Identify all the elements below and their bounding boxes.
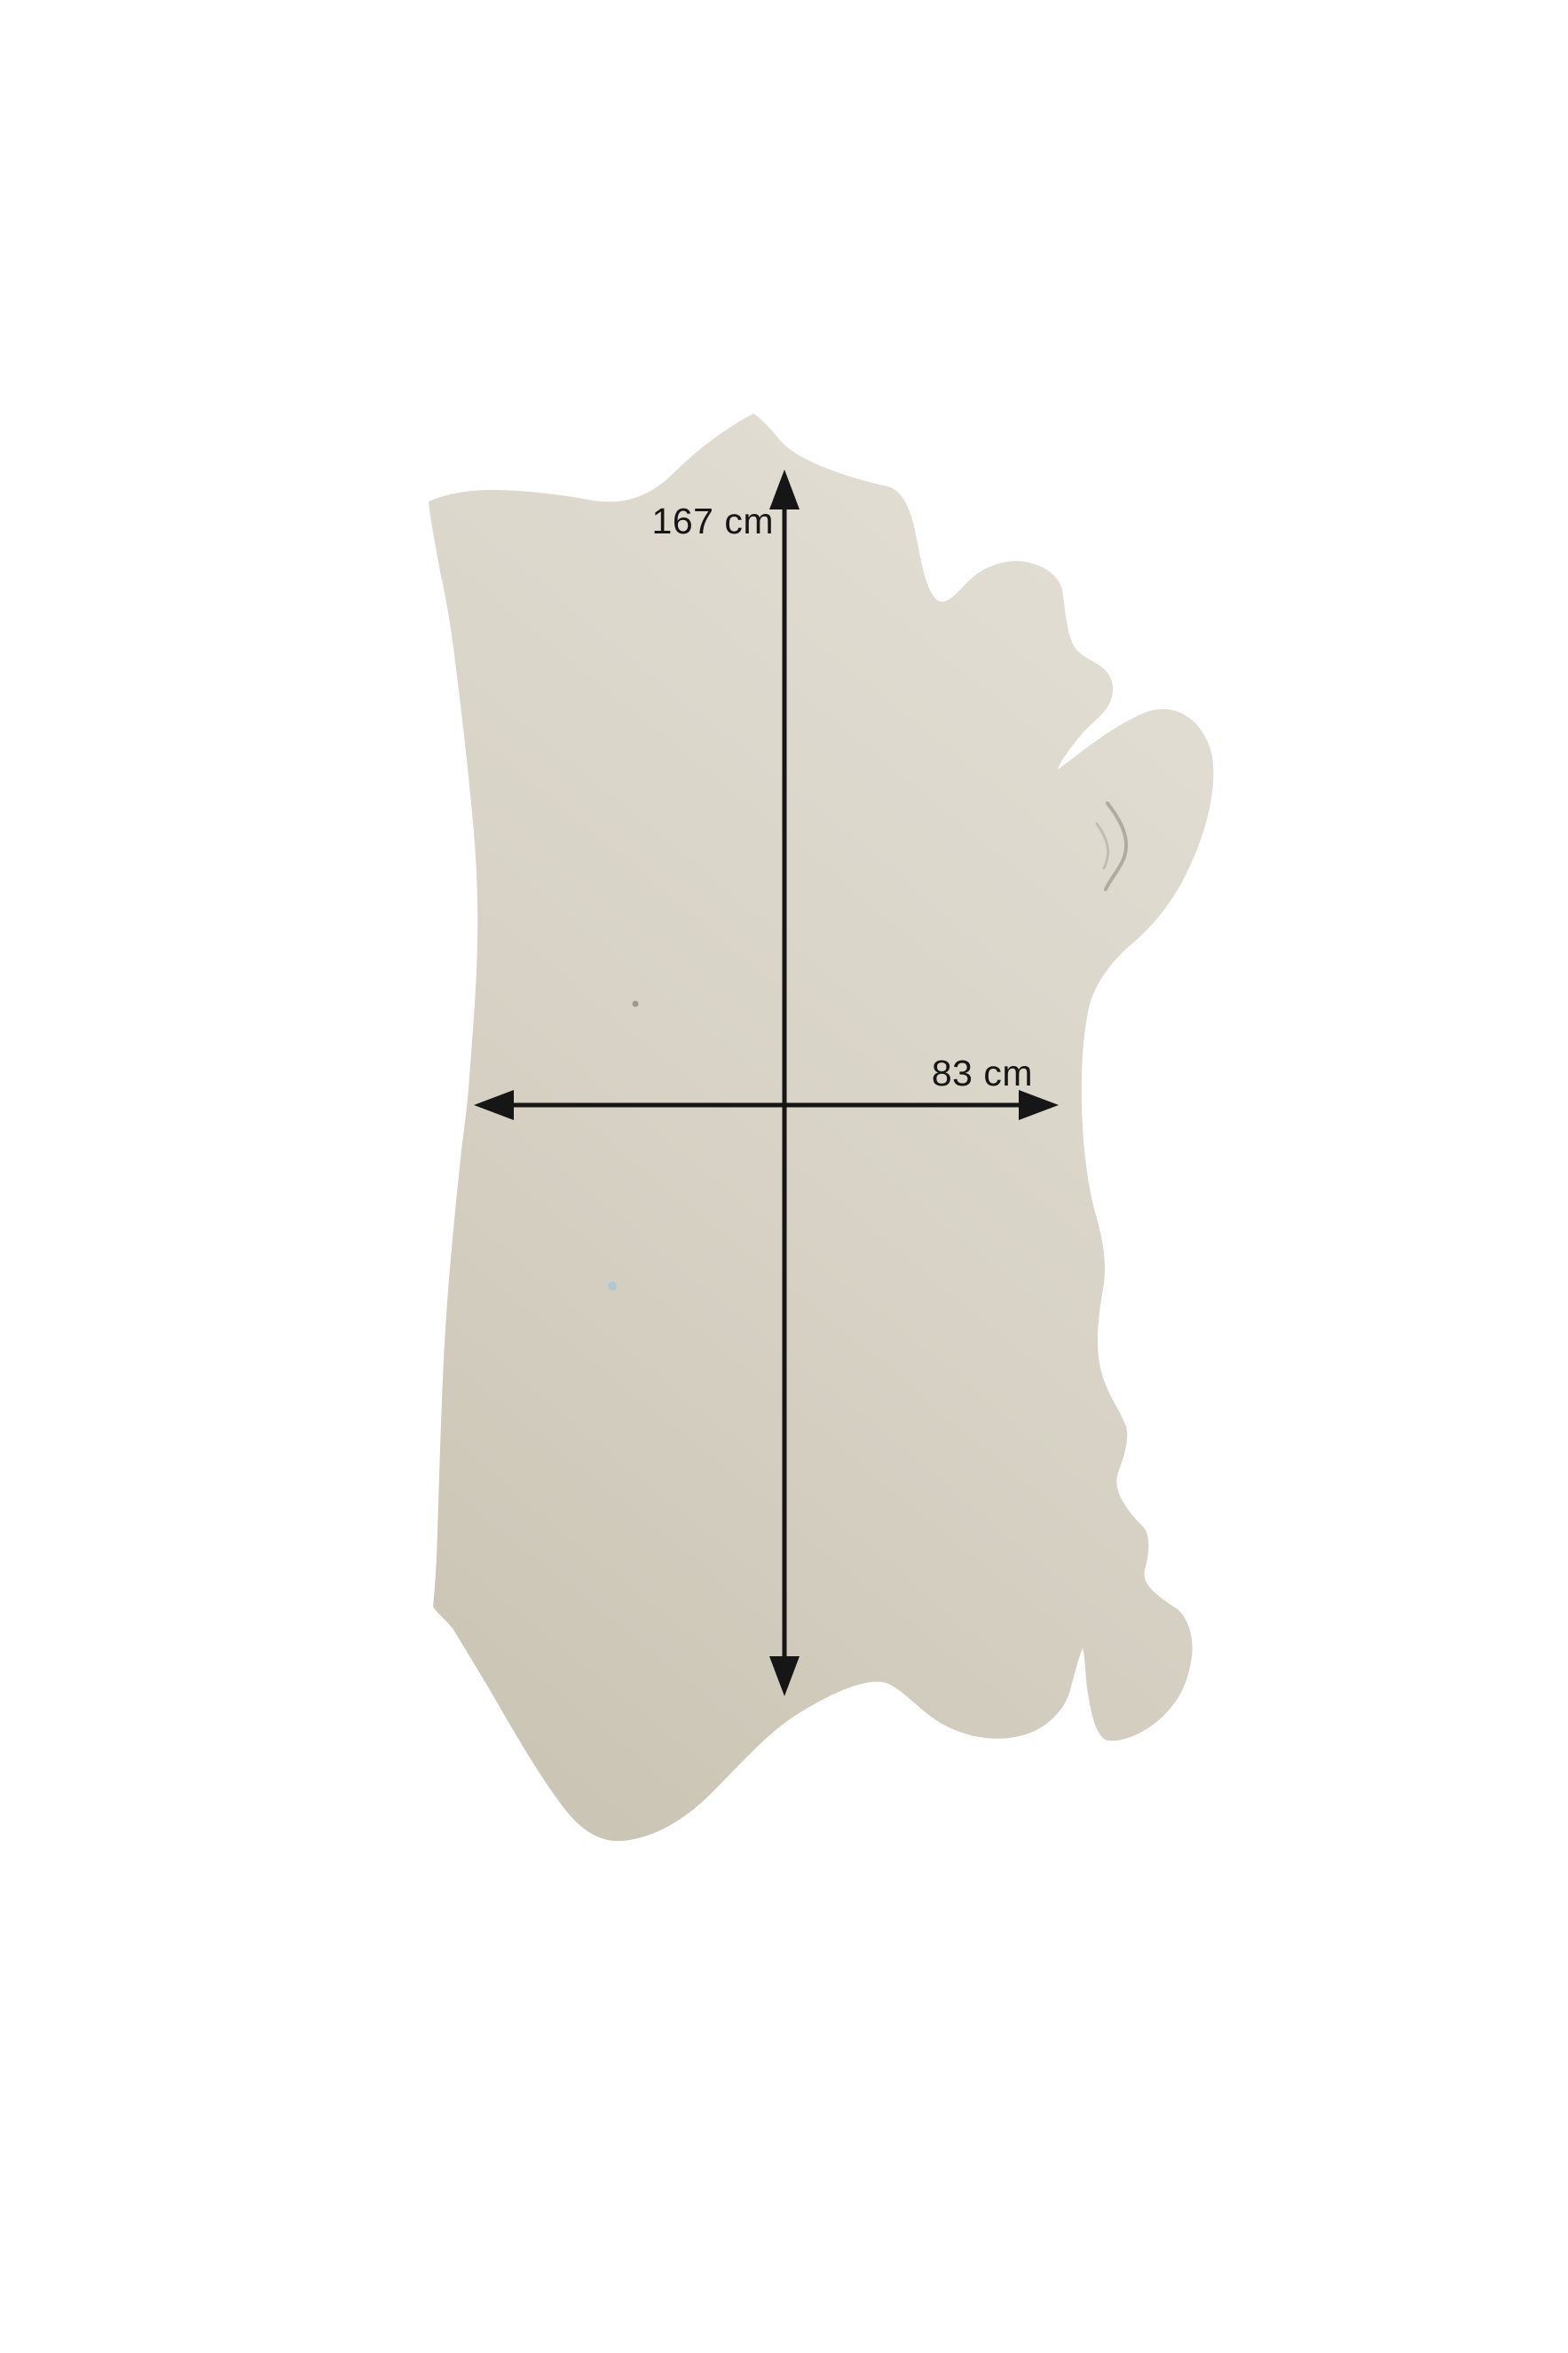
leather-hide-product-photo: 167 cm 83 cm (0, 0, 1568, 2353)
width-dimension-label: 83 cm (932, 1053, 1033, 1094)
height-dimension-label: 167 cm (652, 501, 774, 541)
product-image-canvas: 167 cm 83 cm (0, 0, 1568, 2353)
dark-speck (633, 1001, 639, 1007)
leather-hide-shape (429, 414, 1213, 1841)
blue-speck (608, 1282, 617, 1291)
